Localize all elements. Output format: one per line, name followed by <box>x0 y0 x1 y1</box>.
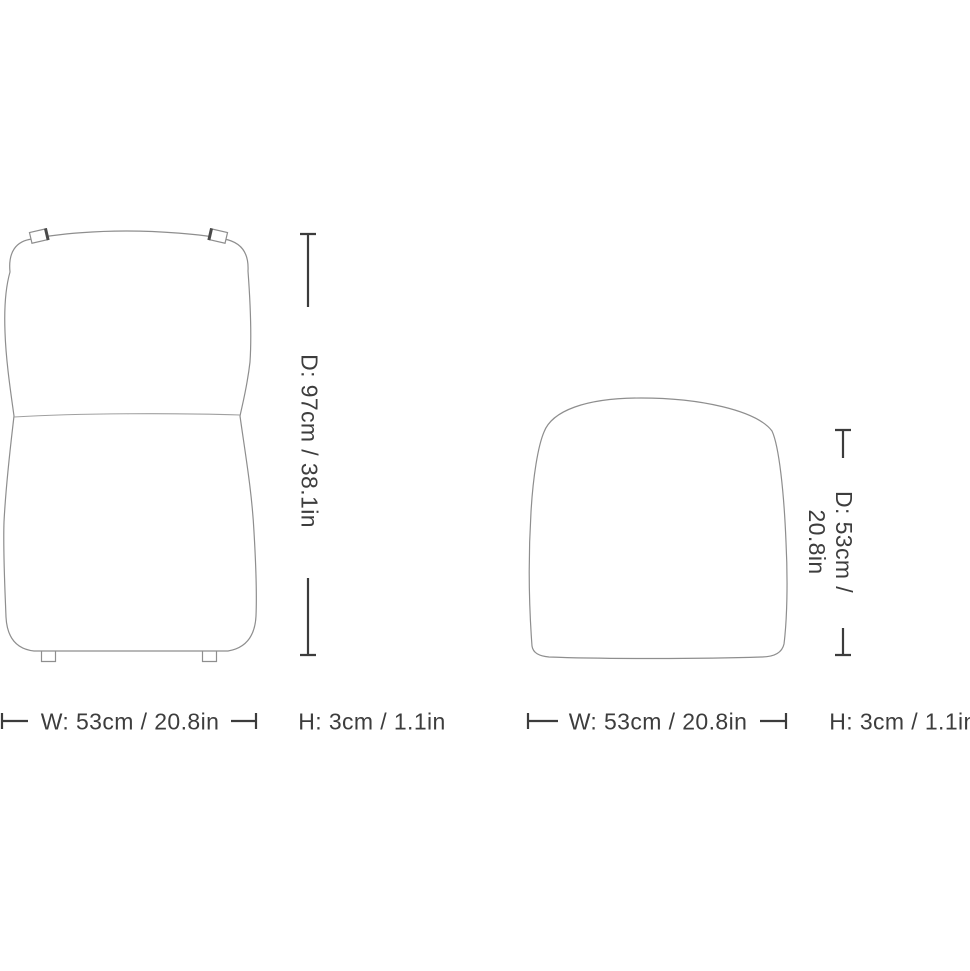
back-width-label: W: 53cm / 20.8in <box>41 709 220 736</box>
seat-width-label: W: 53cm / 20.8in <box>569 709 748 736</box>
seat-depth-label: D: 53cm / 20.8in <box>803 491 857 593</box>
seat-depth-label-line1: D: 53cm / <box>830 491 857 593</box>
back-cushion-foot-tab-left <box>42 651 56 662</box>
dimension-diagram-canvas <box>0 0 970 971</box>
seat-cushion-outline <box>529 398 787 659</box>
back-depth-label: D: 97cm / 38.1in <box>296 354 323 528</box>
seat-depth-label-line2: 20.8in <box>803 491 830 593</box>
back-cushion-outline <box>4 231 257 651</box>
seat-height-label: H: 3cm / 1.1in <box>829 709 970 736</box>
back-cushion-foot-tab-right <box>203 651 217 662</box>
back-height-label: H: 3cm / 1.1in <box>298 709 446 736</box>
